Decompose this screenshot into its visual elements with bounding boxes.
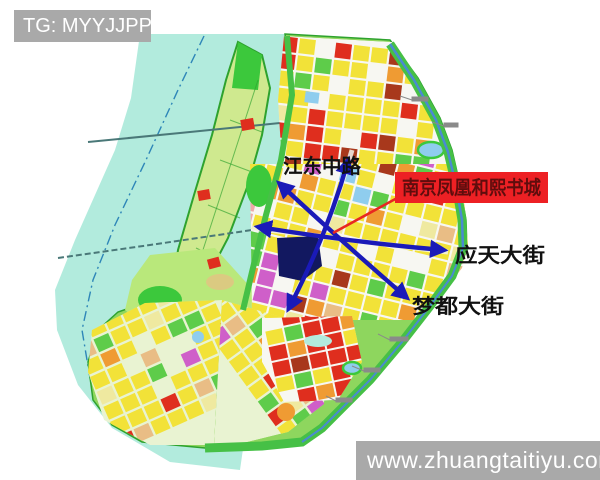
bookcity-label-text: 南京凤凰和熙书城 <box>402 176 541 199</box>
zoning-block <box>314 58 332 75</box>
zoning-block <box>407 342 426 360</box>
zoning-block <box>334 43 352 60</box>
lake <box>418 142 444 158</box>
zoning-block <box>451 317 470 335</box>
zoning-block <box>306 126 324 143</box>
telegram-watermark: TG: MYYJJPP <box>14 10 151 42</box>
blue-parcel <box>304 91 319 104</box>
website-watermark: www.zhuangtaitiyu.com <box>356 441 600 480</box>
zoning-block <box>382 101 400 118</box>
zoning-block <box>403 359 422 377</box>
jiangdong-road-label: 江东中路 <box>283 154 362 178</box>
zoning-block <box>463 267 482 285</box>
zoning-block <box>443 351 462 369</box>
planning-map: 南京凤凰和熙书城 江东中路 应天大街 梦都大街 <box>0 0 600 480</box>
zoning-block <box>308 109 326 126</box>
zoning-block <box>348 79 366 96</box>
zoning-block <box>370 47 388 64</box>
zoning-block <box>364 98 382 115</box>
zoning-block <box>493 150 512 168</box>
zoning-block <box>396 137 414 154</box>
zoning-block <box>346 96 364 113</box>
zoning-block <box>324 128 342 145</box>
zoning-block <box>497 134 516 152</box>
zoning-block <box>425 346 444 364</box>
zoning-block <box>326 111 344 128</box>
zoning-block <box>425 54 443 71</box>
zoning-block <box>378 135 396 152</box>
zoning-block <box>350 62 368 79</box>
zoning-block <box>380 118 398 135</box>
zoning-block <box>416 122 434 139</box>
zoning-block <box>457 142 476 160</box>
pond <box>343 362 361 374</box>
zoning-block <box>461 125 480 143</box>
island-red-parcel <box>240 118 255 131</box>
zoning-block <box>438 367 457 385</box>
zoning-block <box>362 115 380 132</box>
zoning-block <box>479 129 498 147</box>
zoning-block <box>475 146 494 164</box>
yingtian-road-label: 应天大街 <box>455 243 545 267</box>
zoning-block <box>384 83 402 100</box>
zoning-block <box>328 94 346 111</box>
zoning-block <box>298 38 316 55</box>
screenshot-root: 南京凤凰和熙书城 江东中路 应天大街 梦都大街 TG: MYYJJPP www.… <box>0 0 600 480</box>
zoning-block <box>352 45 370 62</box>
mengdu-road-label: 梦都大街 <box>412 294 504 318</box>
zoning-block <box>400 103 418 120</box>
zoning-block <box>421 363 440 381</box>
zoning-block <box>286 141 304 158</box>
zoning-block <box>429 330 448 348</box>
zoning-block <box>366 81 384 98</box>
fan-lagoon <box>304 335 332 347</box>
delta-sand-patch <box>206 274 234 290</box>
zoning-block <box>423 71 441 88</box>
zoning-block <box>332 60 350 77</box>
zoning-block <box>447 334 466 352</box>
zoning-block <box>360 132 378 149</box>
zoning-block <box>344 113 362 130</box>
zoning-block <box>476 217 495 235</box>
zoning-block <box>296 55 314 72</box>
orange-parcel <box>277 403 295 421</box>
blue-parcel <box>192 331 204 343</box>
zoning-block <box>294 72 312 89</box>
zoning-block <box>288 124 306 141</box>
zoning-block <box>312 75 330 92</box>
island-red-parcel <box>197 189 211 201</box>
